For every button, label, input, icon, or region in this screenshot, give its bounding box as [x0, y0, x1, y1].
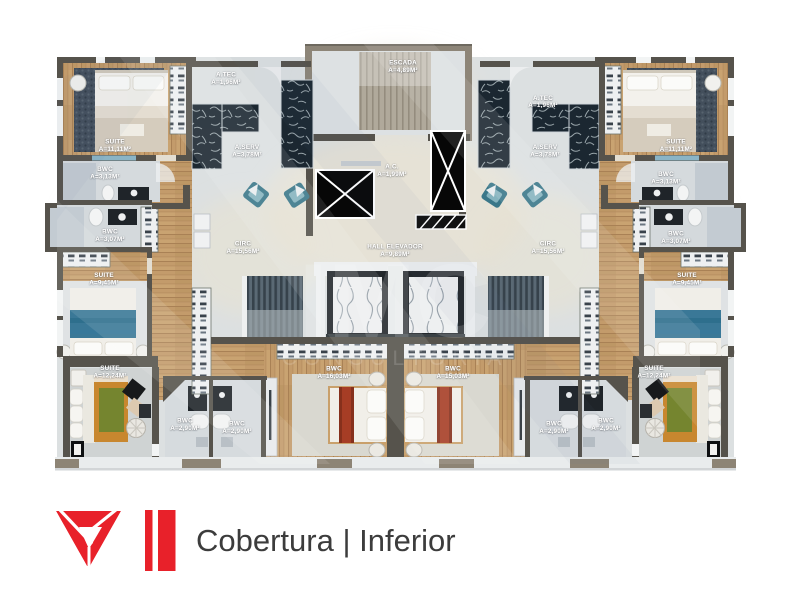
svg-text:A=9,89M²: A=9,89M² — [380, 251, 409, 258]
svg-text:CIRC: CIRC — [540, 241, 556, 248]
svg-text:A.SERV: A.SERV — [235, 144, 260, 151]
svg-text:SUITE: SUITE — [94, 272, 114, 279]
svg-text:A=3,07M²: A=3,07M² — [95, 236, 124, 243]
svg-text:SUITE: SUITE — [100, 365, 120, 372]
svg-text:SUITE: SUITE — [105, 139, 125, 146]
svg-text:A.SERV: A.SERV — [533, 144, 558, 151]
svg-text:A.C.: A.C. — [385, 164, 398, 171]
svg-text:SUITE: SUITE — [677, 272, 697, 279]
svg-text:A=4,89M²: A=4,89M² — [388, 67, 417, 74]
svg-text:BWC: BWC — [177, 418, 193, 425]
svg-text:BWC: BWC — [546, 421, 562, 428]
svg-text:IMC: IMC — [299, 243, 491, 360]
svg-text:A.TEC: A.TEC — [533, 95, 553, 102]
svg-text:A=12,24M²: A=12,24M² — [637, 373, 670, 380]
svg-text:A=2,90M²: A=2,90M² — [170, 425, 199, 432]
svg-text:A=2,90M²: A=2,90M² — [222, 428, 251, 435]
svg-text:BWC: BWC — [102, 229, 118, 236]
svg-text:A=15,56M²: A=15,56M² — [226, 248, 259, 255]
svg-text:HALL ELEVADOR: HALL ELEVADOR — [367, 244, 423, 251]
svg-text:A=16,03M²: A=16,03M² — [317, 373, 350, 380]
svg-text:BWC: BWC — [668, 231, 684, 238]
svg-text:A=9,45M²: A=9,45M² — [89, 280, 118, 287]
svg-text:SUITE: SUITE — [644, 365, 664, 372]
svg-text:A=15,03M²: A=15,03M² — [436, 373, 469, 380]
svg-text:A=3,13M²: A=3,13M² — [90, 174, 119, 181]
svg-text:A=11,11M²: A=11,11M² — [660, 146, 692, 153]
svg-text:A=3,78M²: A=3,78M² — [530, 152, 559, 159]
svg-text:A=2,90M²: A=2,90M² — [539, 428, 568, 435]
svg-text:A=1,99M²: A=1,99M² — [377, 171, 406, 178]
svg-text:BWC: BWC — [598, 418, 614, 425]
svg-text:Cobertura | Inferior: Cobertura | Inferior — [196, 523, 456, 558]
svg-text:A=3,13M²: A=3,13M² — [651, 179, 680, 186]
svg-text:A=1,96M²: A=1,96M² — [528, 102, 557, 109]
svg-text:A=3,78M²: A=3,78M² — [232, 152, 261, 159]
svg-text:SUITE: SUITE — [666, 139, 686, 146]
svg-text:BWC: BWC — [97, 166, 113, 173]
svg-text:A.TEC: A.TEC — [216, 72, 236, 79]
svg-text:A=15,56M²: A=15,56M² — [531, 248, 564, 255]
svg-text:CONSULTORIA: CONSULTORIA — [282, 347, 509, 370]
svg-text:A=9,45M²: A=9,45M² — [672, 280, 701, 287]
svg-text:A=1,96M²: A=1,96M² — [211, 79, 240, 86]
svg-text:A=11,11M²: A=11,11M² — [99, 146, 131, 153]
svg-text:A=12,24M²: A=12,24M² — [93, 373, 126, 380]
svg-text:BWC: BWC — [229, 421, 245, 428]
svg-text:CIRC: CIRC — [235, 241, 251, 248]
svg-text:A=2,90M²: A=2,90M² — [591, 425, 620, 432]
svg-text:BWC: BWC — [658, 171, 674, 178]
svg-text:BWC: BWC — [445, 366, 461, 373]
svg-text:A=3,07M²: A=3,07M² — [661, 238, 690, 245]
svg-text:BWC: BWC — [326, 366, 342, 373]
svg-text:ESCADA: ESCADA — [389, 60, 417, 67]
